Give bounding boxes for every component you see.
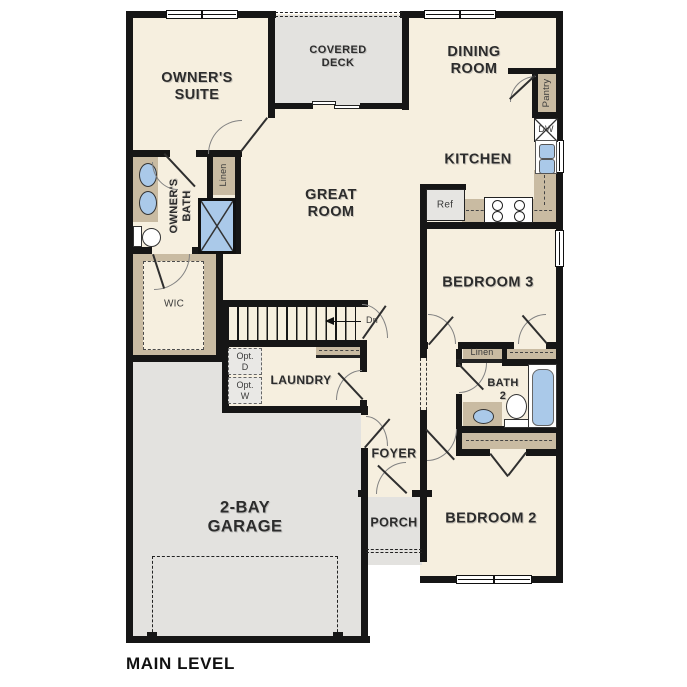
- sliding-door-icon: [312, 101, 336, 105]
- room-label-garage: 2-BAYGARAGE: [208, 499, 283, 538]
- room-label-wic: WIC: [164, 299, 184, 310]
- wall-segment: [360, 103, 409, 109]
- sink-basin-icon: [539, 159, 555, 174]
- wall-segment: [420, 410, 427, 490]
- wall-segment: [402, 11, 409, 110]
- room-label-bedroom-2: BEDROOM 2: [445, 510, 536, 527]
- wall-segment: [268, 103, 313, 109]
- sliding-door-icon: [334, 105, 360, 109]
- burner-icon: [514, 200, 525, 211]
- deck-open-edge: [275, 12, 402, 17]
- toilet-tank-icon: [133, 226, 142, 247]
- wall-segment: [126, 11, 133, 643]
- wall-segment: [420, 222, 562, 229]
- window: [424, 10, 496, 19]
- closet-rod-dash: [510, 352, 553, 353]
- pantry-label: Pantry: [542, 79, 552, 108]
- dishwasher-label: DW: [538, 125, 553, 135]
- refrigerator-label: Ref: [437, 200, 453, 211]
- stairs: [229, 307, 356, 340]
- opt-washer-label: W: [241, 391, 250, 401]
- exterior-gap: [368, 565, 420, 637]
- burner-icon: [492, 200, 503, 211]
- wall-segment: [222, 406, 368, 413]
- bathtub-basin-icon: [532, 369, 554, 426]
- bath-sink-icon: [473, 409, 494, 424]
- room-label-owners-bath: OWNER'SBATH: [168, 179, 194, 234]
- door-opening: [490, 449, 526, 456]
- wall-segment: [222, 340, 362, 347]
- linen-label: Linen: [470, 348, 493, 358]
- burner-icon: [492, 211, 503, 222]
- stove-icon: [484, 197, 533, 223]
- room-label-bedroom-3: BEDROOM 3: [442, 274, 533, 291]
- sink-basin-icon: [539, 144, 555, 159]
- garage-door-outline: [152, 556, 338, 637]
- shower-icon: [198, 198, 236, 254]
- wall-segment: [207, 150, 213, 202]
- window: [166, 10, 238, 19]
- optional-dryer-box: Opt. D: [228, 348, 262, 375]
- room-label-owners-suite: OWNER'SSUITE: [161, 70, 233, 104]
- optional-washer-box: Opt. W: [228, 377, 262, 404]
- closet-rod-dash: [466, 440, 552, 441]
- wall-segment: [222, 300, 368, 307]
- wall-nub: [147, 632, 157, 641]
- wall-segment: [268, 11, 275, 118]
- stair-direction-label: Dn: [366, 316, 378, 326]
- wall-segment: [316, 355, 362, 358]
- wall-segment: [456, 394, 462, 456]
- wall-nub: [333, 632, 343, 641]
- door-opening: [152, 247, 192, 254]
- wall-segment: [126, 355, 223, 362]
- opt-washer-label: Opt.: [236, 380, 253, 390]
- toilet-tank-icon: [504, 419, 529, 428]
- porch-floor: [366, 496, 422, 565]
- bath-sink-icon: [139, 191, 157, 215]
- counter-dash: [544, 175, 545, 205]
- room-label-kitchen: KITCHEN: [444, 151, 511, 168]
- opt-dryer-label: Opt.: [236, 351, 253, 361]
- kitchen-counter-vertical: [534, 170, 556, 202]
- closet-rod-dash: [319, 350, 359, 351]
- linen-label: Linen: [219, 163, 229, 186]
- room-label-laundry: LAUNDRY: [270, 373, 331, 387]
- porch-open-edge: [366, 549, 422, 553]
- toilet-bowl-icon: [142, 228, 161, 247]
- room-label-great-room: GREATROOM: [305, 187, 357, 221]
- plan-title: MAIN LEVEL: [126, 654, 235, 674]
- window: [456, 575, 532, 584]
- burner-icon: [514, 211, 525, 222]
- floor-plan: Opt. D Opt. W OWNER'SSUITE COVEREDDECK D…: [0, 0, 687, 687]
- stairs-arrow-line: [334, 321, 361, 322]
- room-label-covered-deck: COVEREDDECK: [309, 44, 366, 70]
- wall-segment: [556, 11, 563, 583]
- cased-opening: [420, 358, 427, 410]
- window: [555, 230, 564, 267]
- room-label-porch: PORCH: [370, 516, 417, 531]
- room-label-foyer: FOYER: [371, 447, 416, 462]
- stairs-arrow-head: [325, 317, 334, 325]
- room-label-dining-room: DININGROOM: [447, 44, 500, 78]
- opt-dryer-label: D: [242, 362, 249, 372]
- room-label-bath-2: BATH2: [487, 377, 518, 403]
